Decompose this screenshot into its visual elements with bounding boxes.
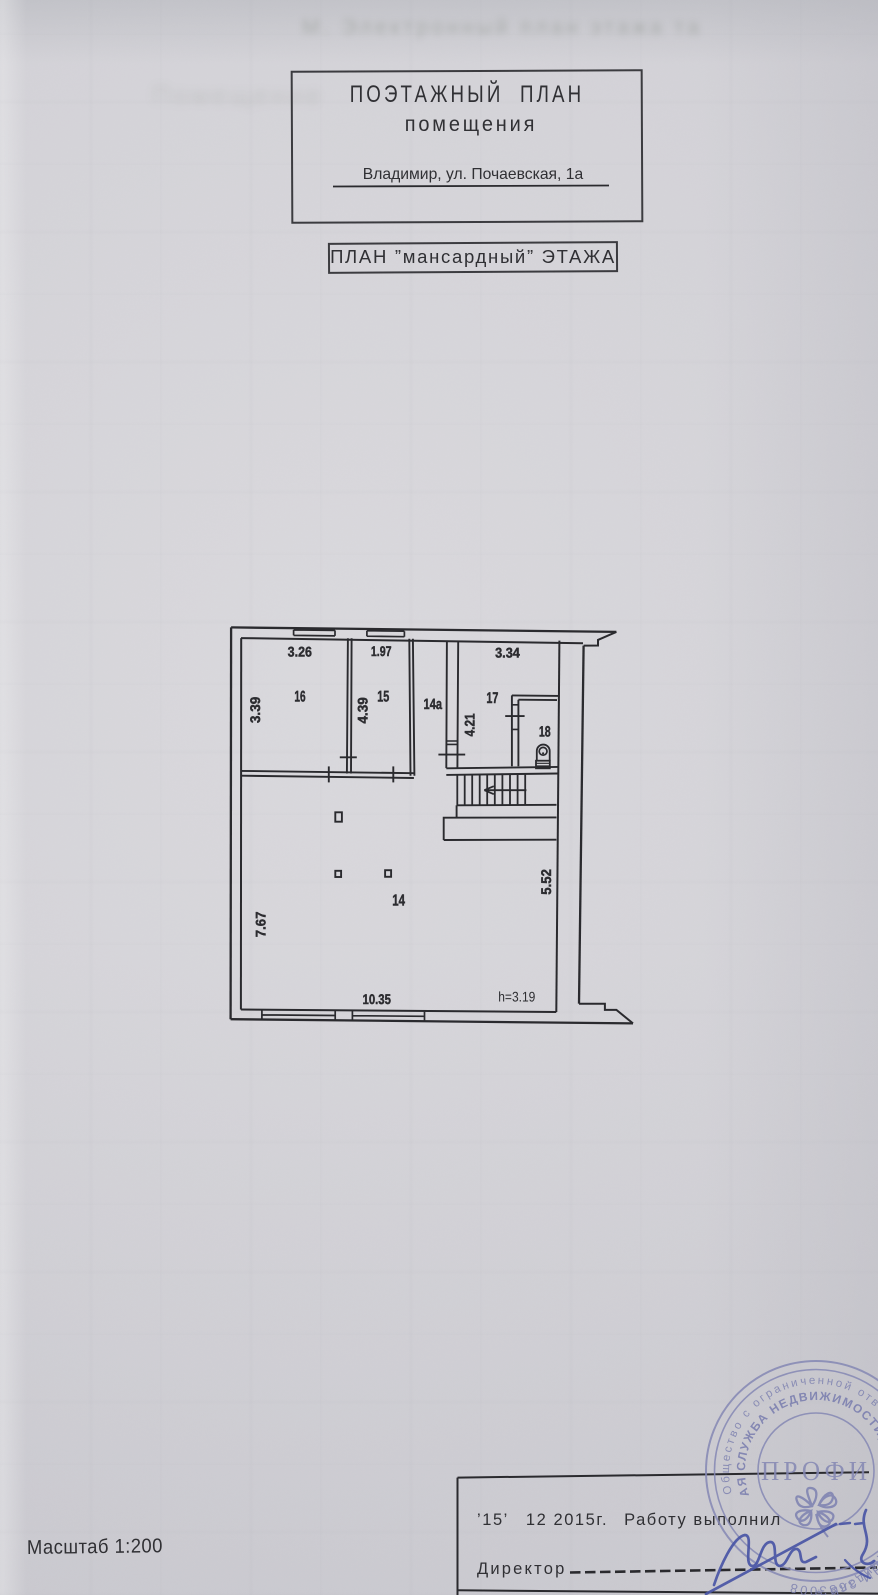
svg-text:4.39: 4.39 (355, 697, 371, 724)
svg-text:10.35: 10.35 (363, 991, 392, 1007)
svg-text:3.39: 3.39 (247, 696, 263, 723)
svg-text:4.21: 4.21 (461, 713, 477, 736)
svg-text:15: 15 (377, 689, 389, 706)
svg-text:14а: 14а (424, 696, 443, 713)
svg-text:ПРОФИ: ПРОФИ (761, 1455, 871, 1486)
svg-text:h=3.19: h=3.19 (498, 988, 535, 1004)
svg-text:7.67: 7.67 (253, 911, 269, 937)
svg-text:3.26: 3.26 (288, 644, 312, 660)
svg-text:18: 18 (539, 724, 551, 741)
svg-text:17: 17 (486, 690, 498, 707)
svg-text:1.97: 1.97 (371, 643, 392, 659)
svg-text:14: 14 (392, 893, 405, 910)
svg-text:3.34: 3.34 (495, 645, 520, 661)
svg-text:16: 16 (294, 689, 305, 706)
svg-text:5.52: 5.52 (538, 869, 554, 895)
